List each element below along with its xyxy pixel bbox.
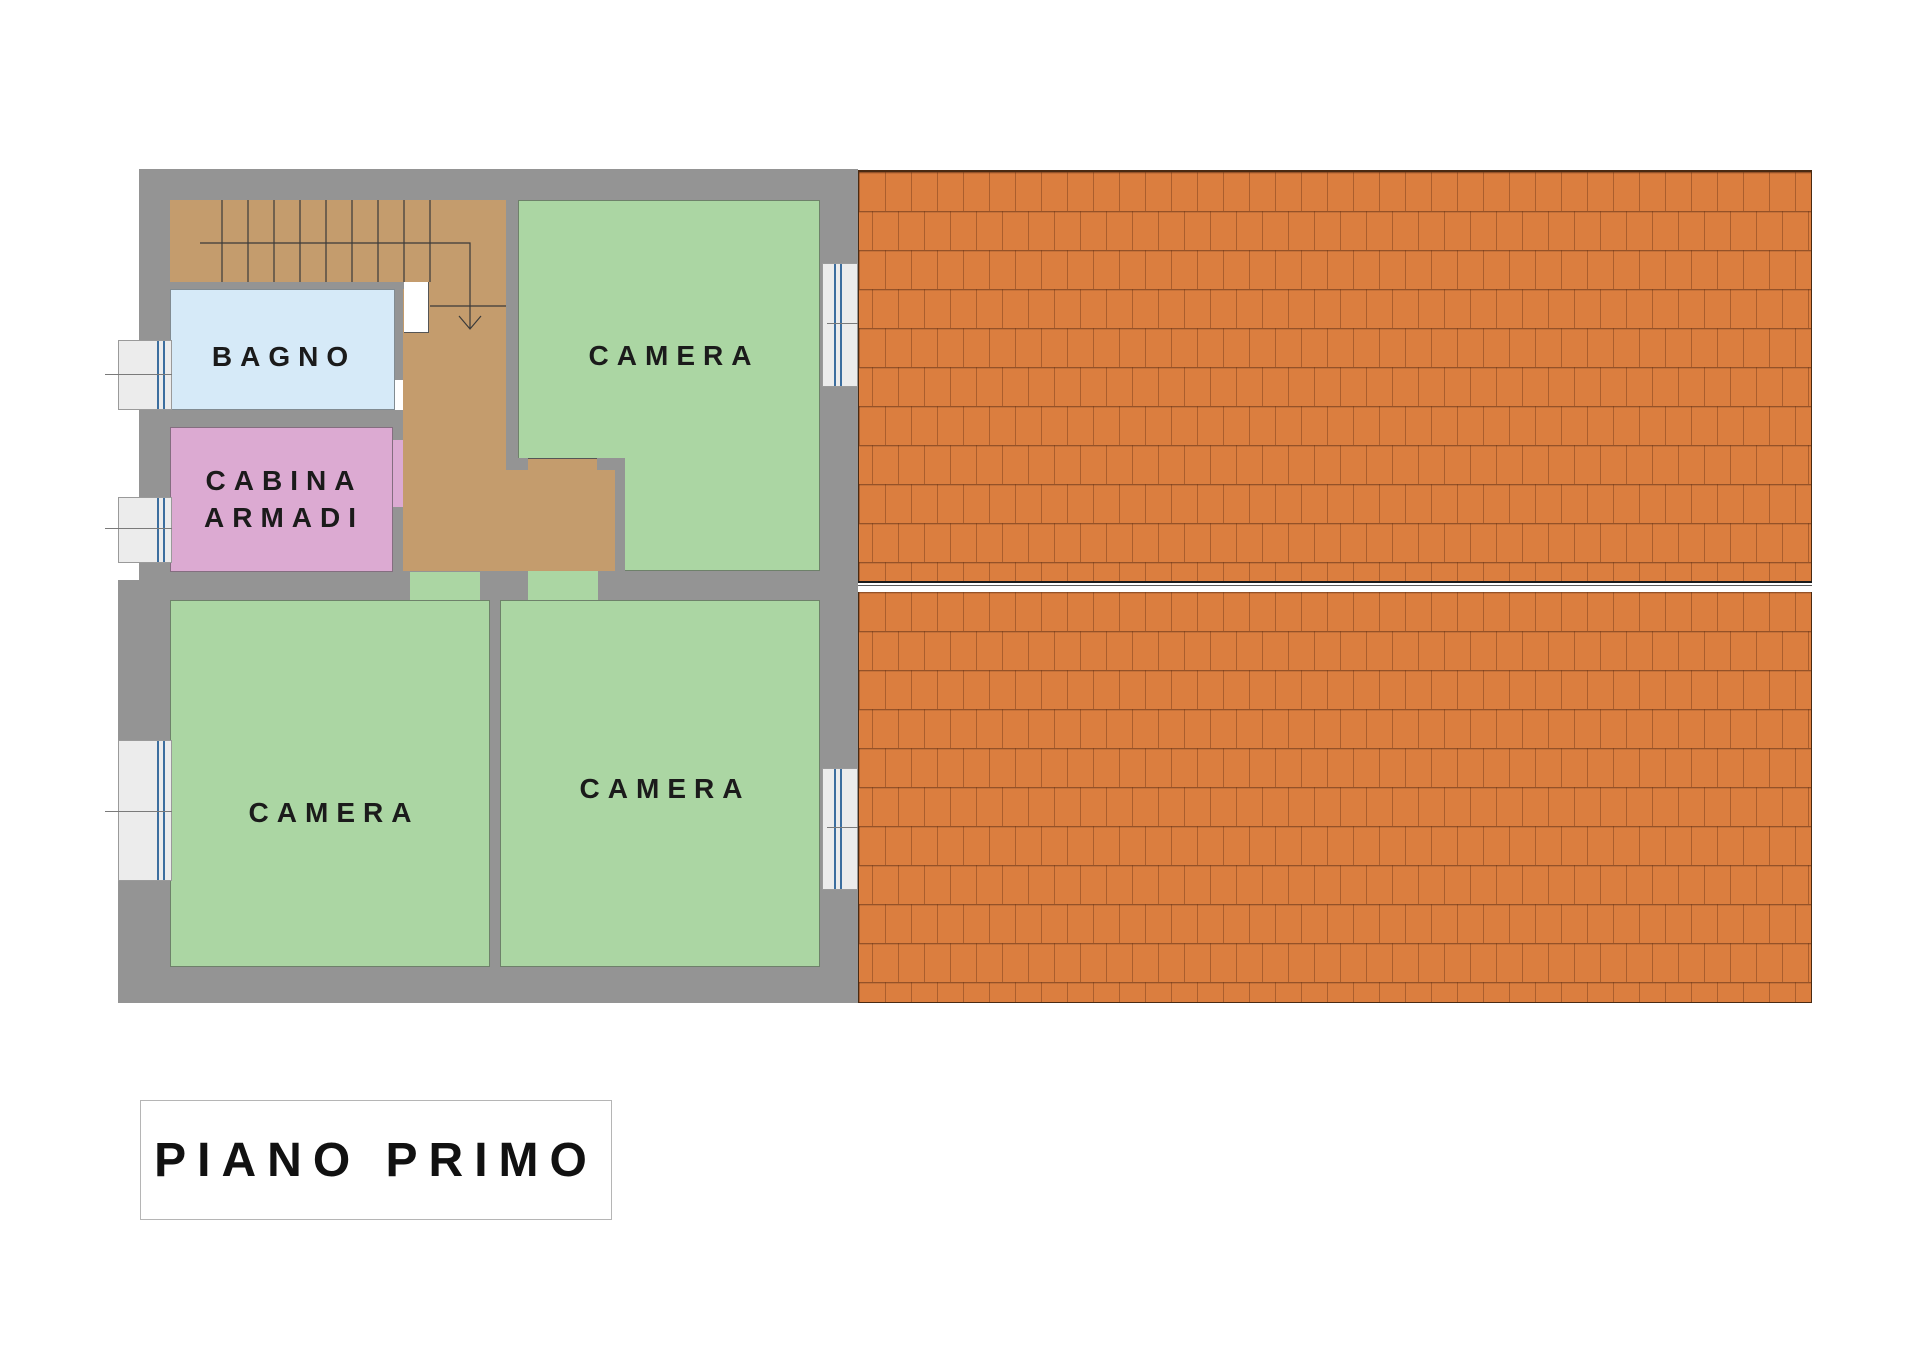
label-camera-bottom-left: CAMERA	[249, 797, 420, 829]
door-hall-to-camera-bl	[410, 572, 480, 600]
label-camera-top: CAMERA	[589, 340, 760, 372]
wall-cabina-bottom	[139, 572, 410, 600]
window-glass-line	[163, 498, 165, 562]
roof-ridge-band	[858, 581, 1812, 592]
window-cabina	[118, 497, 172, 563]
page-title: PIANO PRIMO	[154, 1133, 598, 1188]
wall-camera-partition	[490, 600, 500, 967]
wall-pier	[480, 571, 528, 600]
wall-hall-camera-stub	[506, 458, 528, 470]
window-camera-bottom-middle	[822, 768, 858, 890]
floor-plan-page: BAGNO CABINA ARMADI CAMERA CAMERA CAMERA…	[0, 0, 1920, 1358]
window-centerline	[105, 811, 172, 812]
door-cabina	[393, 440, 403, 507]
window-centerline	[105, 374, 172, 375]
window-bagno	[118, 340, 172, 410]
window-camera-top	[822, 263, 858, 387]
window-centerline	[105, 528, 172, 529]
wall-hallext-stub	[597, 458, 625, 470]
wall-cabina-right-top	[393, 427, 403, 440]
roof-upper-pitch	[858, 170, 1812, 581]
window-glass-line	[840, 769, 842, 889]
door-hall-to-camera-bm	[528, 571, 598, 600]
label-bagno: BAGNO	[212, 341, 356, 373]
label-cabina-line2: ARMADI	[204, 499, 364, 536]
wall-hallext-right	[615, 458, 625, 571]
window-glass-line	[834, 264, 836, 386]
window-glass-line	[834, 769, 836, 889]
title-box: PIANO PRIMO	[140, 1100, 612, 1220]
hallway-extension	[506, 458, 615, 571]
door-threshold-camera-top	[528, 458, 597, 459]
wall-bagno-cabina	[170, 410, 403, 427]
window-glass-line	[157, 498, 159, 562]
label-camera-bottom-middle: CAMERA	[580, 773, 751, 805]
wall-camera-divider	[598, 571, 820, 598]
window-glass-line	[163, 341, 165, 409]
door-bagno	[395, 380, 403, 410]
stairs-treads-and-arrow	[170, 198, 510, 340]
roof-lower-pitch	[858, 592, 1812, 1003]
window-glass-line	[840, 264, 842, 386]
label-cabina-armadi: CABINA ARMADI	[204, 462, 364, 536]
window-glass-line	[157, 341, 159, 409]
room-camera-bottom-left	[170, 600, 490, 967]
wall-cabina-right-bottom	[393, 507, 403, 572]
label-cabina-line1: CABINA	[204, 462, 364, 499]
